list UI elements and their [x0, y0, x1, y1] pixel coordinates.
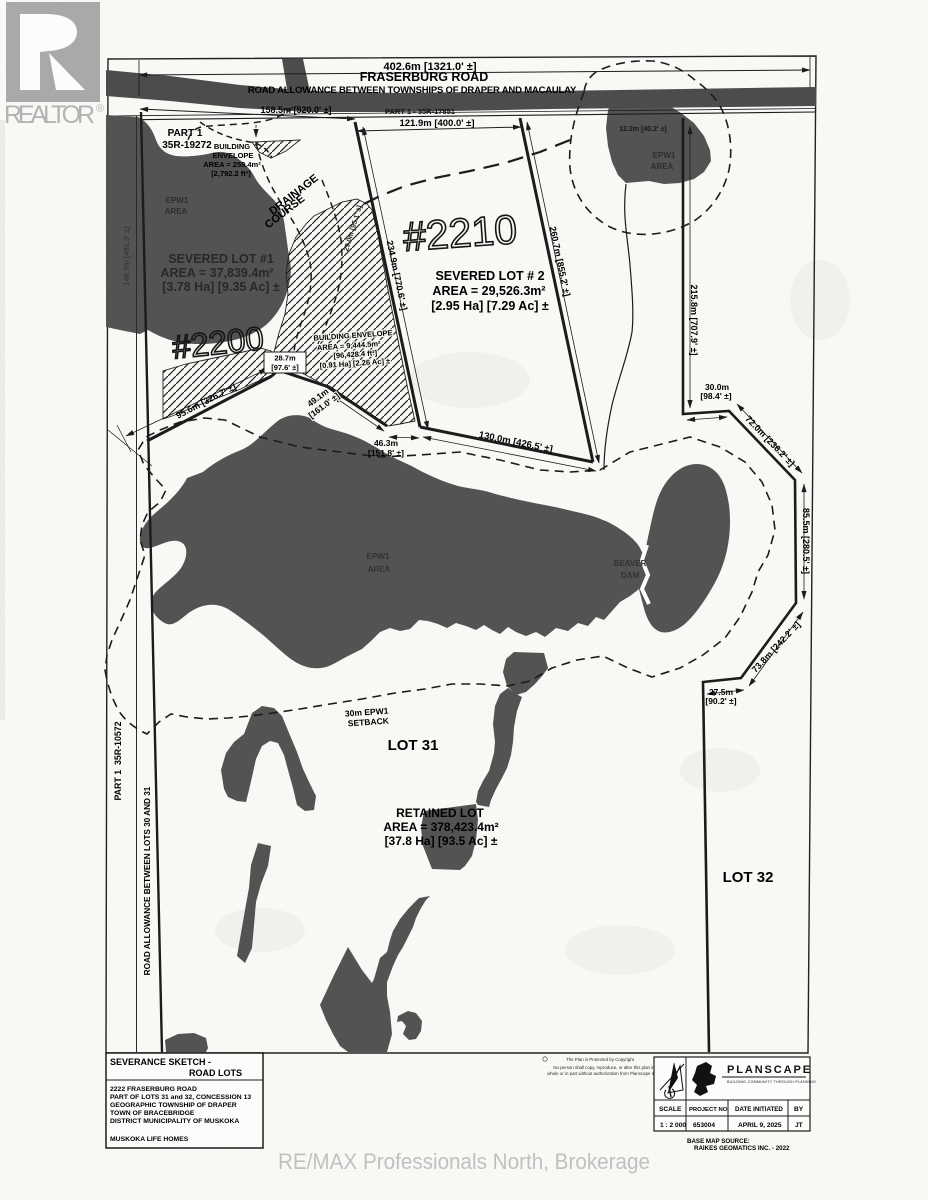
svg-text:The Plan is Protected by Copyr: The Plan is Protected by Copyright — [566, 1057, 635, 1062]
svg-text:FRASERBURG ROAD: FRASERBURG ROAD — [360, 70, 488, 84]
svg-text:1 : 2 000: 1 : 2 000 — [660, 1122, 686, 1129]
svg-text:AREA: AREA — [165, 207, 188, 216]
svg-text:ENVELOPE: ENVELOPE — [213, 151, 254, 160]
svg-text:GEOGRAPHIC TOWNSHIP OF DRAPER: GEOGRAPHIC TOWNSHIP OF DRAPER — [110, 1102, 237, 1109]
svg-text:SEVERED LOT #1: SEVERED LOT #1 — [168, 252, 274, 266]
svg-text:SCALE: SCALE — [659, 1106, 682, 1113]
svg-text:SEVERANCE SKETCH -: SEVERANCE SKETCH - — [110, 1057, 211, 1067]
svg-text:AREA: AREA — [651, 162, 674, 171]
svg-text:ROAD ALLOWANCE BETWEEN TOWNSHI: ROAD ALLOWANCE BETWEEN TOWNSHIPS OF DRAP… — [248, 85, 577, 96]
svg-text:whole or in part without autho: whole or in part without authorization f… — [547, 1071, 659, 1076]
svg-text:[3.78 Ha] [9.35 Ac] ±: [3.78 Ha] [9.35 Ac] ± — [162, 280, 280, 294]
svg-text:AREA = 259.4m²: AREA = 259.4m² — [203, 160, 261, 169]
svg-text:DATE INITIATED: DATE INITIATED — [735, 1106, 783, 1113]
svg-text:PART OF LOTS 31 and 32, CONCES: PART OF LOTS 31 and 32, CONCESSION 13 — [110, 1094, 251, 1101]
svg-text:215.8m [707.9' ±]: 215.8m [707.9' ±] — [689, 284, 699, 355]
svg-text:EPW1: EPW1 — [166, 196, 189, 205]
svg-text:BEAVER: BEAVER — [614, 559, 647, 568]
svg-text:[98.4' ±]: [98.4' ±] — [700, 391, 731, 401]
svg-text:JT: JT — [795, 1122, 803, 1129]
svg-text:SEVERED LOT # 2: SEVERED LOT # 2 — [435, 269, 544, 283]
svg-text:[90.2' ±]: [90.2' ±] — [705, 696, 736, 706]
svg-text:RAIKES GEOMATICS INC. - 2022: RAIKES GEOMATICS INC. - 2022 — [694, 1145, 790, 1152]
svg-text:653004: 653004 — [693, 1122, 715, 1129]
svg-text:BY: BY — [794, 1106, 804, 1113]
svg-text:121.9m [400.0' ±]: 121.9m [400.0' ±] — [399, 118, 474, 129]
svg-text:EPW1: EPW1 — [367, 552, 390, 561]
svg-text:AREA: AREA — [368, 565, 391, 574]
svg-text:158.5m [520.0' ±]: 158.5m [520.0' ±] — [260, 105, 331, 115]
svg-text:AREA = 37,839.4m²: AREA = 37,839.4m² — [160, 266, 273, 280]
svg-text:DAM: DAM — [621, 571, 640, 580]
svg-text:DISTRICT MUNICIPALITY OF MUSKO: DISTRICT MUNICIPALITY OF MUSKOKA — [110, 1118, 239, 1125]
svg-text:BUILDING COMMUNITY THROUGH PLA: BUILDING COMMUNITY THROUGH PLANNING — [727, 1080, 816, 1084]
svg-text:RETAINED LOT: RETAINED LOT — [396, 806, 484, 820]
svg-text:No person shall copy, reproduc: No person shall copy, reproduce, or alte… — [553, 1065, 655, 1070]
svg-text:BASE MAP SOURCE:: BASE MAP SOURCE: — [687, 1138, 750, 1145]
svg-text:[37.8 Ha] [93.5 Ac] ±: [37.8 Ha] [93.5 Ac] ± — [385, 834, 498, 848]
svg-text:PART 1 - 35R-17851: PART 1 - 35R-17851 — [385, 107, 455, 116]
svg-text:ROAD LOTS: ROAD LOTS — [189, 1068, 242, 1078]
svg-text:REALTOR: REALTOR — [4, 101, 95, 129]
svg-text:LOT 31: LOT 31 — [388, 737, 439, 754]
svg-text:TOWN OF BRACEBRIDGE: TOWN OF BRACEBRIDGE — [110, 1110, 195, 1117]
svg-text:12.2m [40.2' ±]: 12.2m [40.2' ±] — [619, 126, 667, 133]
svg-text:RE/MAX Professionals North, Br: RE/MAX Professionals North, Brokerage — [278, 1149, 650, 1174]
svg-text:PART 1 35R-10572: PART 1 35R-10572 — [113, 721, 123, 800]
svg-text:PART 1: PART 1 — [168, 128, 203, 139]
svg-text:AREA = 378,423.4m²: AREA = 378,423.4m² — [383, 820, 498, 834]
svg-text:LOT 32: LOT 32 — [723, 869, 774, 886]
svg-text:[97.6' ±]: [97.6' ±] — [271, 363, 299, 372]
svg-text:PROJECT NO.: PROJECT NO. — [689, 1107, 729, 1113]
svg-text:2222 FRASERBURG ROAD: 2222 FRASERBURG ROAD — [110, 1086, 197, 1093]
svg-text:BUILDING: BUILDING — [214, 142, 250, 151]
svg-text:28.7m: 28.7m — [274, 354, 296, 363]
svg-text:APRIL 9, 2025: APRIL 9, 2025 — [738, 1122, 782, 1129]
svg-text:[2,792.2 ft²]: [2,792.2 ft²] — [211, 169, 251, 178]
svg-text:85.5m [280.5' ±]: 85.5m [280.5' ±] — [801, 508, 811, 574]
svg-text:#2210: #2210 — [402, 206, 519, 260]
svg-text:AREA = 29,526.3m²: AREA = 29,526.3m² — [432, 284, 545, 298]
svg-text:®: ® — [96, 103, 104, 115]
svg-text:35R-19272: 35R-19272 — [162, 140, 212, 151]
svg-text:46.3m: 46.3m — [374, 438, 399, 448]
svg-text:[2.95 Ha] [7.29 Ac] ±: [2.95 Ha] [7.29 Ac] ± — [431, 299, 549, 313]
svg-text:MUSKOKA LIFE HOMES: MUSKOKA LIFE HOMES — [110, 1136, 189, 1143]
svg-text:ROAD ALLOWANCE BETWEEN LOTS 30: ROAD ALLOWANCE BETWEEN LOTS 30 AND 31 — [143, 786, 152, 975]
svg-text:PLANSCAPE: PLANSCAPE — [727, 1064, 812, 1076]
svg-text:[151.8' ±]: [151.8' ±] — [368, 448, 404, 458]
svg-text:146.7m [481.3' ±]: 146.7m [481.3' ±] — [122, 226, 131, 286]
svg-text:EPW1: EPW1 — [653, 151, 676, 160]
